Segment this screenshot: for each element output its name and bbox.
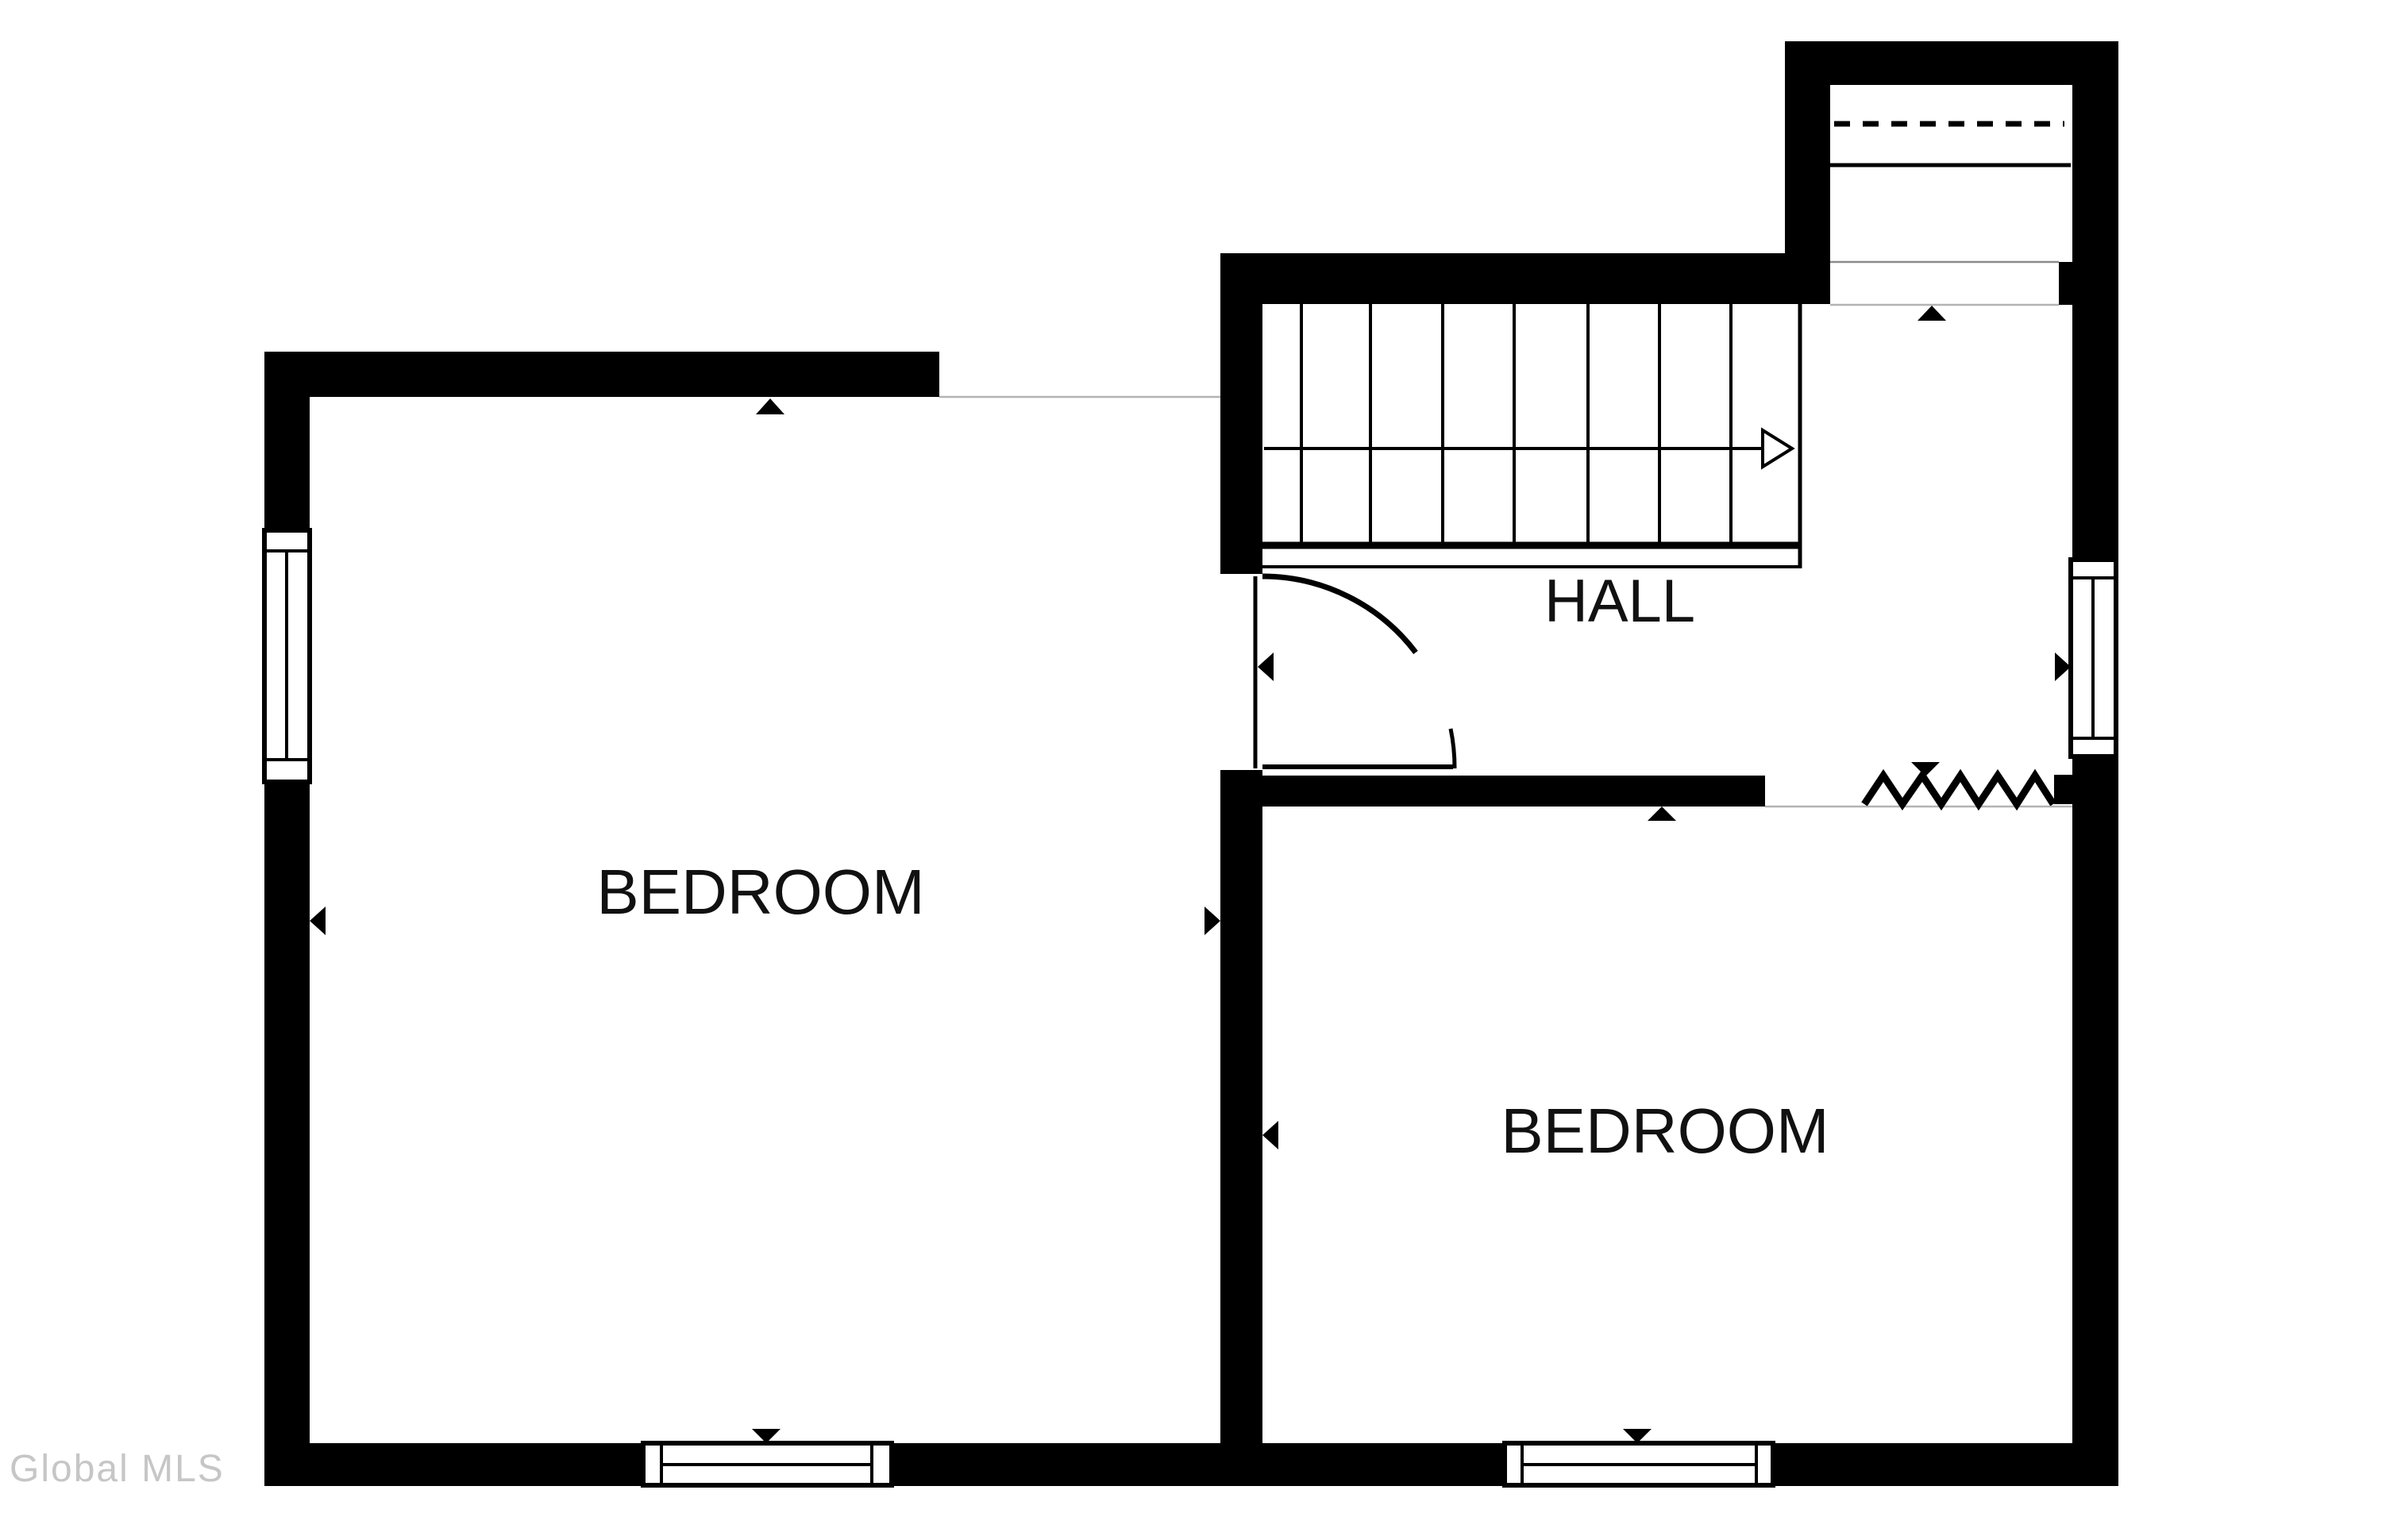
window-right-wall [2071, 560, 2116, 757]
marker-up-icon [1918, 306, 1946, 321]
closet-left-wall [1785, 41, 1830, 304]
marker-left-icon [310, 907, 326, 935]
floor-plan-svg: BEDROOM BEDROOM HALL Global MLS [0, 0, 2382, 1540]
window-bottom-left [643, 1443, 892, 1485]
stair-direction-arrow-icon [1264, 430, 1792, 467]
right-bedroom-top-wall [1262, 776, 1765, 807]
staircase [1252, 304, 1800, 568]
hall-top-wall [1220, 253, 1830, 304]
room-label-hall: HALL [1544, 568, 1695, 635]
window-bottom-right [1505, 1443, 1773, 1485]
closet-opening-stub [2059, 262, 2084, 305]
watermark-global-mls: Global MLS [10, 1448, 225, 1490]
zigzag-end-stub [2054, 775, 2072, 804]
door-swing-arc-tail [1451, 729, 1455, 768]
window-left-wall [264, 530, 310, 782]
bottom-wall-segment-1 [264, 1443, 643, 1486]
bottom-wall-segment-3 [1773, 1443, 2118, 1486]
bottom-wall-segment-2 [892, 1443, 1505, 1486]
marker-right-icon [1204, 907, 1220, 935]
hall-door [1255, 576, 1455, 768]
top-wall-left-bedroom [264, 352, 939, 397]
shared-wall-lower [1220, 770, 1262, 1486]
closet-detail [1830, 124, 2071, 165]
walls [264, 41, 2118, 1486]
door-swing-arc [1262, 576, 1416, 653]
marker-left-icon [1262, 1121, 1278, 1149]
wall-markers [310, 306, 2071, 1443]
left-wall-lower [264, 782, 310, 1486]
marker-up-icon [1648, 807, 1676, 821]
floor-plan-page: BEDROOM BEDROOM HALL Global MLS [0, 0, 2382, 1540]
marker-down-icon [1911, 762, 1940, 776]
right-wall-lower [2072, 757, 2118, 1486]
room-label-bedroom-left: BEDROOM [596, 857, 924, 927]
zigzag-open-edge [1864, 776, 2053, 804]
closet-top-wall [1785, 41, 2118, 85]
marker-up-icon [756, 398, 784, 414]
room-label-bedroom-right: BEDROOM [1501, 1095, 1829, 1166]
marker-left-icon [1258, 653, 1274, 681]
edge-lines [939, 262, 2072, 807]
